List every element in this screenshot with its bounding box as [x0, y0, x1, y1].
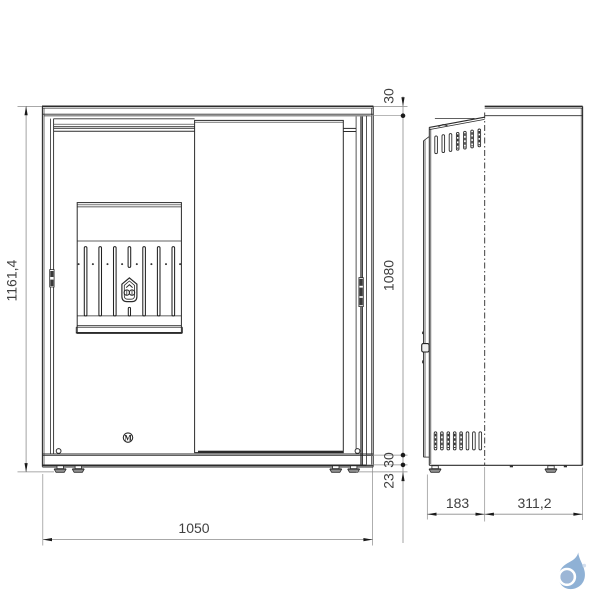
svg-text:30: 30: [381, 452, 397, 468]
svg-text:1050: 1050: [178, 520, 209, 536]
svg-text:1080: 1080: [381, 260, 397, 291]
svg-text:1161,4: 1161,4: [4, 259, 20, 301]
svg-text:30: 30: [381, 88, 397, 104]
svg-text:183: 183: [446, 495, 470, 511]
svg-text:23: 23: [381, 473, 397, 489]
svg-text:311,2: 311,2: [518, 495, 552, 511]
svg-text:M: M: [124, 434, 132, 443]
